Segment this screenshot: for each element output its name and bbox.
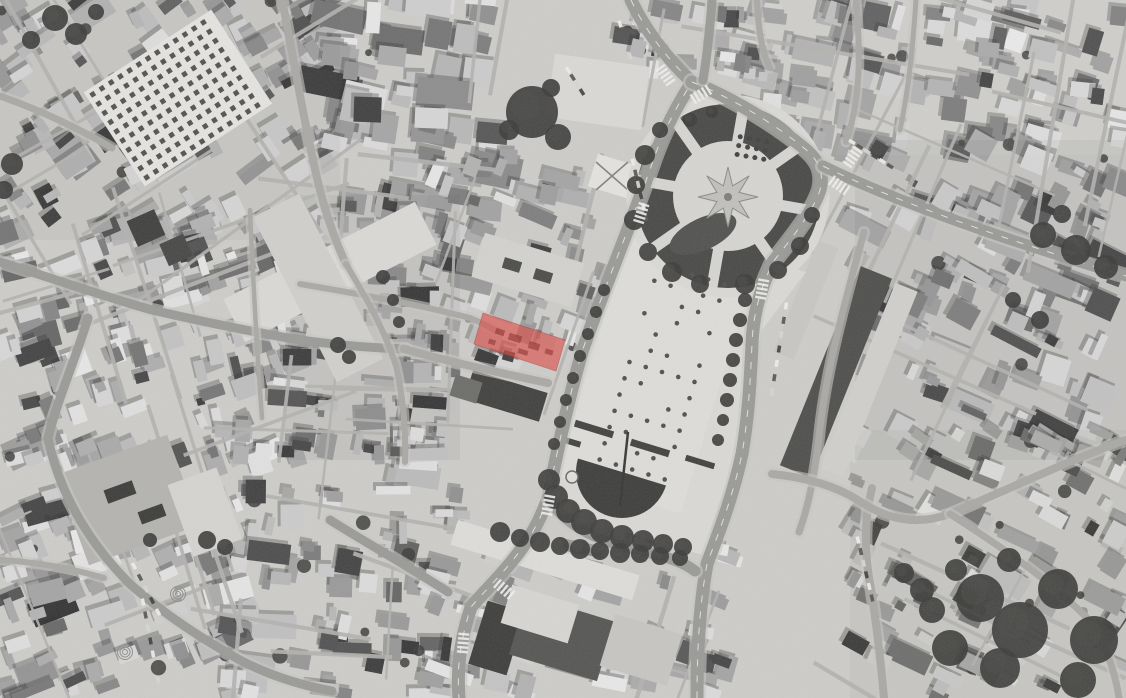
aerial-map-view bbox=[0, 0, 1126, 698]
map-svg bbox=[0, 0, 1126, 698]
